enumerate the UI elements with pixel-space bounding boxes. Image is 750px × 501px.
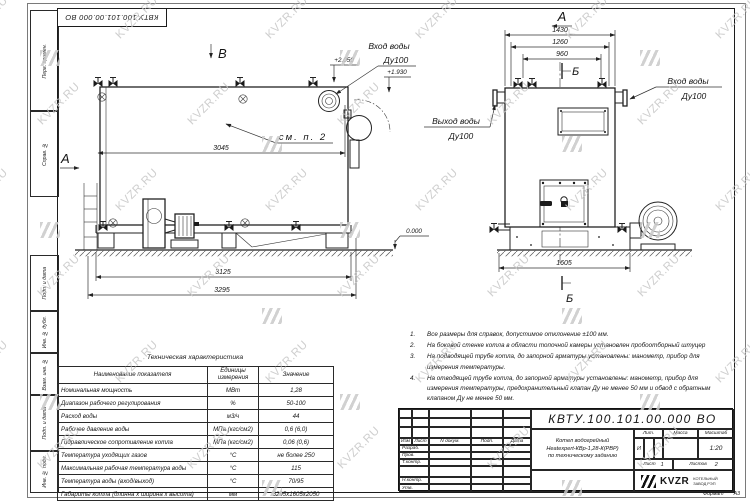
watermark-text: KVZR.RU (0, 339, 10, 386)
param-value: 70/95 (259, 475, 334, 488)
tech-table-row: Рабочее давление водыМПа (кгс/см2)0,6 (6… (58, 423, 334, 436)
sheets-cell: Листов2 (673, 459, 734, 470)
burner-blower (630, 202, 677, 250)
param-name: Рабочее давление воды (58, 423, 208, 436)
tech-table-title: Техническая характеристика (57, 354, 333, 366)
param-unit: °С (208, 462, 259, 475)
param-value: 44 (259, 410, 334, 423)
role-utv: Утв. (399, 484, 429, 492)
param-unit: °С (208, 475, 259, 488)
param-value: 115 (259, 462, 334, 475)
boiler-drawing-views: 3045 3125 3295 В А см. п. 2 Вход воды (0, 0, 750, 340)
door-handle (540, 201, 552, 206)
margin-cell-podp-data-2: Подп. и дата (30, 394, 59, 452)
elevation-mark-1930: +1.930 (384, 69, 411, 92)
top-corner-doc-number-stamp: КВТУ.100.101.00.000 ВО (57, 8, 167, 27)
elevation-mark-zero: 0.000 (395, 228, 429, 249)
lit-label: Лит. (634, 429, 663, 438)
tech-table-header-row: Наименование показателя Единицы измерени… (58, 367, 334, 384)
ground-hatch (75, 251, 393, 256)
tech-characteristics: Техническая характеристика Наименование … (57, 354, 333, 501)
param-value: 0,06 (0,6) (259, 436, 334, 449)
role-nkontr: Н.контр. (399, 477, 429, 484)
dim-3125: 3125 (96, 252, 351, 281)
support-frame-front (510, 227, 630, 250)
section-mark-B-bottom: Б (562, 276, 573, 305)
param-value: 1,28 (259, 384, 334, 397)
company-cell: KVZR КОТЕЛЬНЫЙ ЗАВОД РЭП (634, 470, 734, 492)
kvzr-logo-text: KVZR (660, 476, 689, 487)
margin-cell-inv-podl: Инв. № подл. (30, 450, 59, 493)
svg-text:А: А (60, 151, 70, 166)
valve-icon (618, 224, 627, 234)
support-frame-side (96, 225, 351, 248)
notes-list: 1.Все размеры для справок, допустимое от… (406, 330, 730, 405)
param-unit: м3/ч (208, 410, 259, 423)
doc-number-rotated: КВТУ.100.101.00.000 ВО (65, 13, 158, 22)
svg-text:Ду100: Ду100 (448, 131, 474, 141)
valve-icon (236, 78, 245, 88)
svg-text:3045: 3045 (213, 145, 229, 152)
svg-text:Ду100: Ду100 (681, 91, 707, 101)
note-item: 1.Все размеры для справок, допустимое от… (406, 330, 730, 340)
svg-text:3295: 3295 (214, 287, 230, 294)
note-item: 3.На подводящей трубе котла, до запорной… (406, 352, 730, 372)
svg-text:Б: Б (566, 293, 573, 305)
tech-table-row: Диапазон рабочего регулирования%50-100 (58, 397, 334, 410)
col-header-units: Единицы измерения (208, 367, 259, 384)
view-label-A-top: А (552, 9, 572, 26)
title-block: КВТУ.100.101.00.000 ВО Изм Лист N докум.… (398, 408, 733, 491)
svg-text:Выход воды: Выход воды (432, 116, 481, 126)
svg-text:Вход воды: Вход воды (667, 76, 709, 86)
massa-value (663, 438, 698, 459)
inlet-flange-front (615, 90, 627, 106)
boiler-body-side (100, 87, 348, 225)
inlet-water-label-side: Вход воды Ду100 (336, 41, 416, 94)
param-value: 0,6 (6,0) (259, 423, 334, 436)
param-unit: °С (208, 449, 259, 462)
engineering-drawing-page: { "doc_number": "КВТУ.100.101.00.000 ВО"… (0, 0, 750, 500)
valve-icon (514, 79, 523, 89)
valve-icon (528, 79, 537, 89)
scale-label: Масштаб (698, 429, 734, 438)
param-unit: МПа (кгс/см2) (208, 436, 259, 449)
param-unit: % (208, 397, 259, 410)
outlet-water-label: Выход воды Ду100 (424, 105, 495, 141)
lit-value: И (634, 438, 644, 459)
param-name: Температура воды (вход/выход) (58, 475, 208, 488)
svg-text:1605: 1605 (556, 260, 572, 267)
inlet-water-label-front: Вход воды Ду100 (630, 76, 722, 101)
title-block-doc-number: КВТУ.100.101.00.000 ВО (531, 409, 734, 429)
tech-table: Наименование показателя Единицы измерени… (57, 366, 334, 501)
tech-table-row: Расход водым3/ч44 (58, 410, 334, 423)
col-header-name: Наименование показателя (58, 367, 208, 384)
rev-header-list: Лист (412, 438, 429, 445)
param-unit: МВт (208, 384, 259, 397)
param-value: не более 250 (259, 449, 334, 462)
role-razrab: Разраб. (399, 445, 429, 452)
col-header-value: Значение (259, 367, 334, 384)
tech-table-row: Температура воды (вход/выход)°С70/95 (58, 475, 334, 488)
param-name: Диапазон рабочего регулирования (58, 397, 208, 410)
product-name: Котел водогрейный Heatexpert-КВр-1,28-К(… (531, 429, 634, 470)
tech-table-row: Температура уходящих газов°Сне более 250 (58, 449, 334, 462)
valve-icon (309, 78, 318, 88)
svg-text:0.000: 0.000 (406, 228, 422, 235)
svg-text:Б: Б (572, 66, 579, 78)
tech-table-row: Гидравлическое сопротивление котлаМПа (к… (58, 436, 334, 449)
svg-text:3125: 3125 (215, 269, 231, 276)
rev-header-podp: Подп. (471, 438, 503, 445)
format-note: Формат А3 (640, 491, 750, 499)
section-mark-B-top: Б (562, 63, 579, 79)
front-view: 1430 1260 960 1605 А Б (424, 9, 722, 305)
param-name: Максимальная рабочая температура воды (58, 462, 208, 475)
section-arrow-A: А (60, 151, 79, 168)
param-name: Расход воды (58, 410, 208, 423)
note-item: 2.На боковой стенке котла в области топо… (406, 341, 730, 351)
param-name: Температура уходящих газов (58, 449, 208, 462)
tech-table-row: Максимальная рабочая температура воды°С1… (58, 462, 334, 475)
param-name: Номинальная мощность (58, 384, 208, 397)
scale-value: 1:20 (698, 438, 734, 459)
svg-text:1430: 1430 (552, 27, 568, 34)
rev-header-data: Дата (503, 438, 531, 445)
sheet-cell: Лист1 (634, 459, 673, 470)
svg-text:+1.930: +1.930 (387, 69, 407, 76)
valve-icon (598, 79, 607, 89)
rev-header-izm: Изм (399, 438, 412, 445)
role-prov: Пров. (399, 452, 429, 459)
svg-text:Вход воды: Вход воды (368, 41, 410, 51)
outlet-flange-front (493, 90, 505, 106)
tech-table-row: Номинальная мощностьМВт1,28 (58, 384, 334, 397)
param-name: Габариты котла (длинна х ширина х высота… (58, 488, 208, 501)
svg-text:960: 960 (556, 51, 568, 58)
valve-icon (94, 78, 103, 88)
company-name: КОТЕЛЬНЫЙ ЗАВОД РЭП (693, 476, 717, 486)
ground-hatch (497, 251, 692, 256)
param-value: 50-100 (259, 397, 334, 410)
svg-text:А: А (557, 9, 567, 24)
param-value: 3295х1605х2050 (259, 488, 334, 501)
boiler-body-front (505, 88, 615, 227)
front-fan-side-profile (344, 100, 390, 168)
ladder (84, 183, 97, 250)
role-tkontr: Т.контр. (399, 459, 429, 466)
svg-text:см. п. 2: см. п. 2 (279, 132, 327, 143)
svg-text:1260: 1260 (552, 39, 568, 46)
elevation-mark-2050: +2.050 (330, 57, 358, 82)
note-item: 4.На отводящей трубе котла, до запорной … (406, 374, 730, 405)
svg-text:Ду100: Ду100 (383, 55, 409, 65)
svg-text:В: В (218, 46, 227, 61)
param-unit: МПа (кгс/см2) (208, 423, 259, 436)
margin-cell-vzam-inv: Взам. инв. № (30, 352, 59, 396)
param-unit: мм (208, 488, 259, 501)
tech-table-row: Габариты котла (длинна х ширина х высота… (58, 488, 334, 501)
valve-icon (109, 78, 118, 88)
rev-header-doc: N докум. (429, 438, 471, 445)
svg-text:+2.050: +2.050 (334, 57, 354, 64)
param-name: Гидравлическое сопротивление котла (58, 436, 208, 449)
massa-label: Масса (663, 429, 698, 438)
valve-icon (490, 224, 499, 234)
side-view: 3045 3125 3295 В А см. п. 2 Вход воды (60, 41, 429, 299)
view-label-B: В (211, 44, 227, 61)
kvzr-logo-icon (641, 475, 656, 488)
